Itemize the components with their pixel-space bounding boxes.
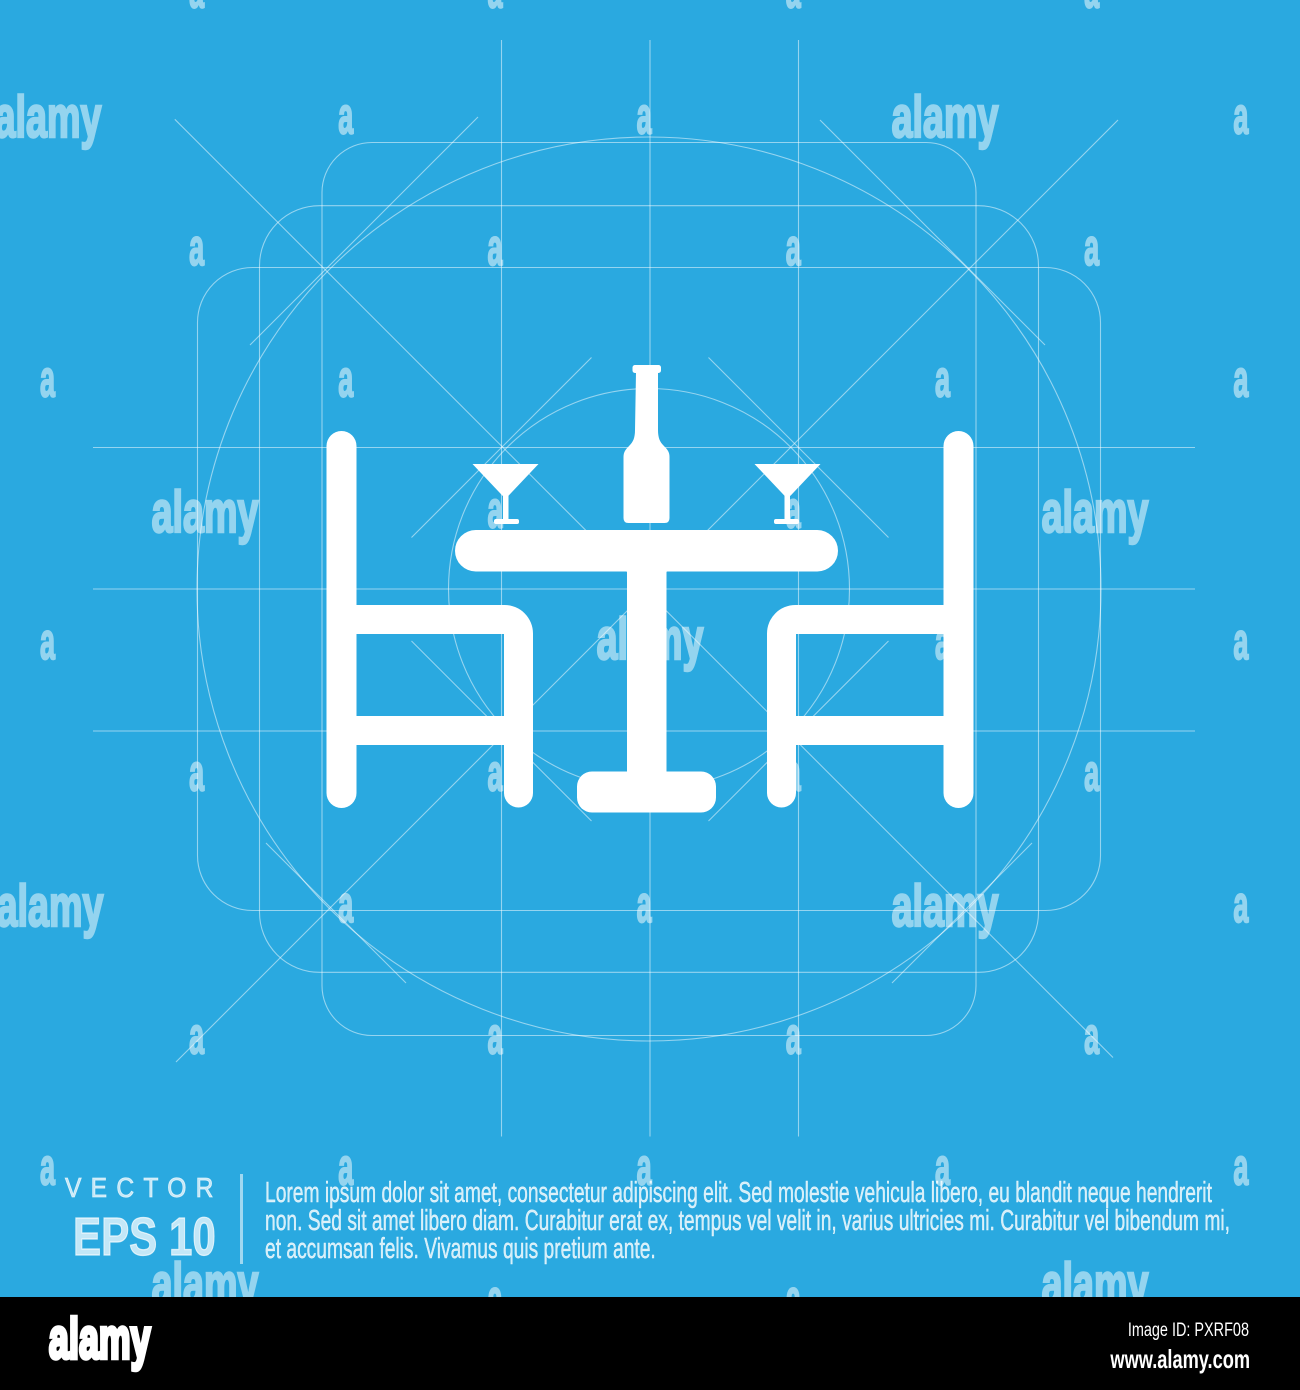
svg-text:a: a — [786, 0, 802, 19]
svg-text:a: a — [1233, 349, 1249, 408]
svg-text:a: a — [189, 1006, 205, 1065]
svg-text:a: a — [487, 0, 503, 19]
svg-text:a: a — [189, 0, 205, 19]
svg-text:a: a — [487, 743, 503, 802]
svg-text:a: a — [1233, 86, 1249, 145]
svg-text:a: a — [338, 874, 354, 933]
svg-text:a: a — [1233, 874, 1249, 933]
svg-text:a: a — [40, 1137, 56, 1196]
svg-text:a: a — [1233, 611, 1249, 670]
svg-text:a: a — [487, 217, 503, 276]
svg-text:alamy: alamy — [1042, 481, 1149, 545]
svg-text:a: a — [637, 86, 653, 145]
svg-text:a: a — [338, 349, 354, 408]
svg-text:alamy: alamy — [152, 481, 259, 545]
svg-text:a: a — [786, 1268, 802, 1297]
svg-text:a: a — [338, 86, 354, 145]
svg-text:a: a — [935, 349, 951, 408]
svg-text:a: a — [189, 743, 205, 802]
svg-text:a: a — [1084, 1006, 1100, 1065]
svg-text:alamy: alamy — [0, 86, 101, 150]
svg-text:a: a — [786, 217, 802, 276]
svg-text:a: a — [1084, 0, 1100, 19]
svg-text:alamy: alamy — [0, 875, 103, 939]
svg-text:a: a — [40, 349, 56, 408]
svg-text:a: a — [1084, 217, 1100, 276]
svg-text:alamy: alamy — [892, 86, 999, 150]
svg-text:a: a — [189, 217, 205, 276]
svg-text:a: a — [487, 1268, 503, 1297]
svg-text:a: a — [1233, 1137, 1249, 1196]
svg-text:a: a — [786, 1006, 802, 1065]
svg-text:a: a — [1084, 743, 1100, 802]
svg-text:alamy: alamy — [892, 875, 999, 939]
svg-text:a: a — [40, 611, 56, 670]
svg-text:a: a — [637, 874, 653, 933]
svg-text:a: a — [487, 1006, 503, 1065]
